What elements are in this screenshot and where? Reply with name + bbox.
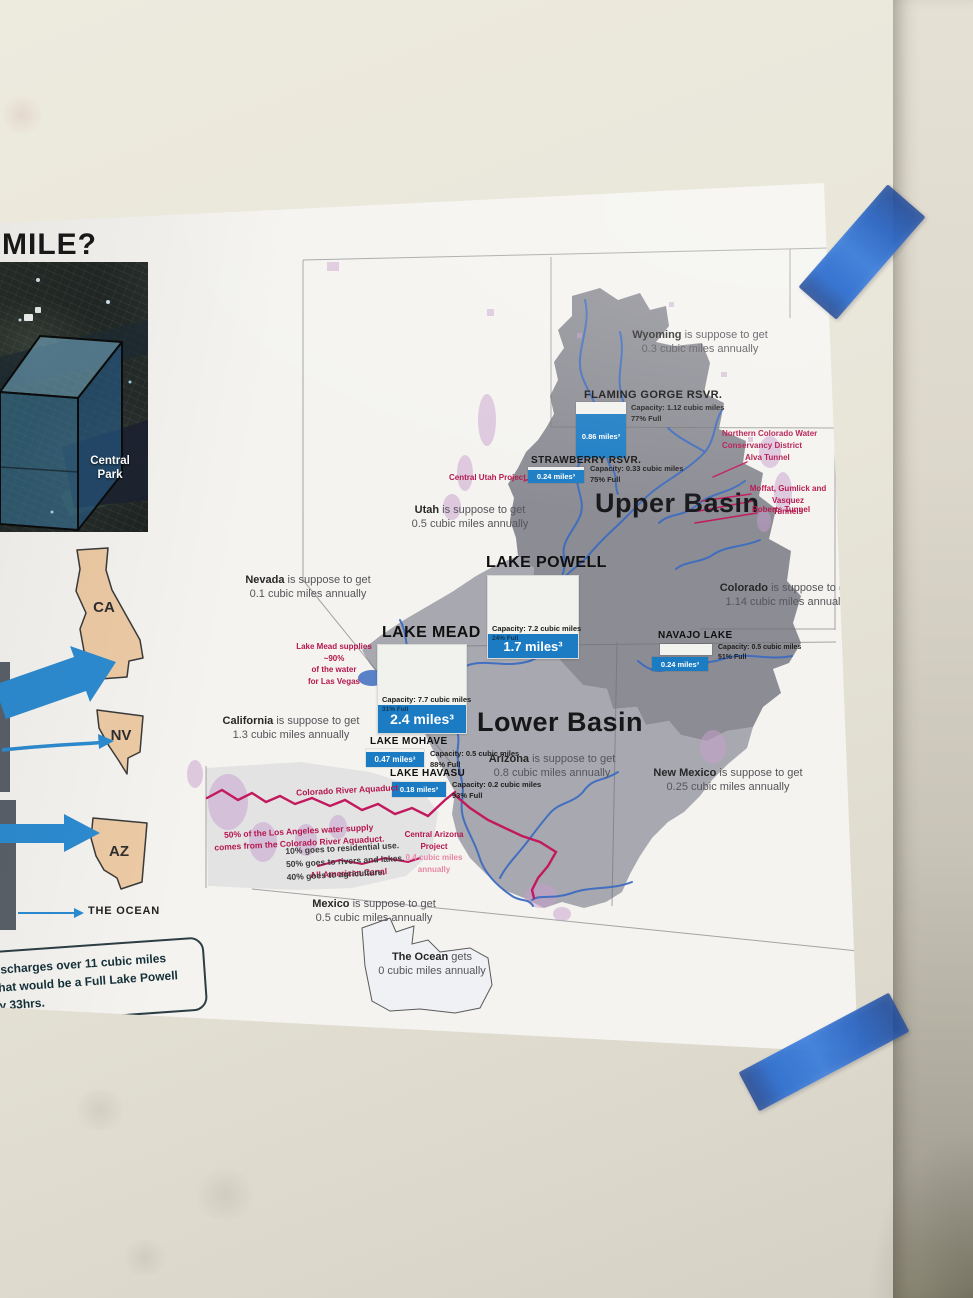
- nevada-abbr: NV: [111, 727, 132, 744]
- reservoir-gauge-lake-powell: Capacity: 7.2 cubic miles 24% Full 1.7 m…: [487, 575, 579, 659]
- allocation-ocean: The Ocean gets0 cubic miles annually: [337, 950, 527, 979]
- poster: MILE? Central Park: [0, 0, 973, 1298]
- arrow-to-nevada: [2, 742, 106, 750]
- california-abbr: CA: [93, 599, 115, 616]
- note-roberts-tunnel: Roberts Tunnel: [752, 504, 810, 516]
- reservoir-name-flaming-gorge: FLAMING GORGE RSVR.: [584, 389, 722, 401]
- reservoir-gauge-flaming-gorge: 0.86 miles³: [576, 402, 626, 458]
- upper-basin-label: Upper Basin: [595, 488, 760, 519]
- la-usage-breakdown: 10% goes to residential use.50% goes to …: [285, 839, 405, 885]
- photo-scene: MILE? Central Park: [0, 0, 973, 1298]
- note-central-utah-project: Central Utah Project: [449, 472, 526, 484]
- wall-spot: [70, 1090, 130, 1130]
- reservoir-gauge-mohave: 0.47 miles³: [366, 749, 424, 767]
- arrow-to-california: [0, 646, 116, 719]
- arrow-to-ocean-head: [74, 908, 84, 918]
- allocation-mexico: Mexico is suppose to get0.5 cubic miles …: [279, 897, 469, 926]
- reservoir-gauge-lake-mead: Capacity: 7.7 cubic miles 31% Full 2.4 m…: [377, 644, 467, 734]
- footnote-box: ischarges over 11 cubic miles hat would …: [0, 936, 208, 1025]
- reservoir-stats-navajo: Capacity: 0.5 cubic miles51% Full: [718, 643, 801, 663]
- note-lake-mead-supply: Lake Mead supplies ~90%of the waterfor L…: [290, 641, 378, 687]
- wall-spot: [120, 1240, 170, 1276]
- wall-smudge: [0, 95, 44, 135]
- reservoir-name-lake-mead: LAKE MEAD: [382, 624, 481, 642]
- wall-spot: [190, 1170, 260, 1220]
- reservoir-stats-flaming-gorge: Capacity: 1.12 cubic miles77% Full: [631, 403, 724, 425]
- allocation-colorado: Colorado is suppose to get1.14 cubic mil…: [692, 581, 882, 610]
- allocation-wyoming: Wyoming is suppose to get0.3 cubic miles…: [605, 328, 795, 357]
- lower-basin-label: Lower Basin: [477, 707, 643, 738]
- note-northern-colorado: Northern Colorado WaterConservancy Distr…: [722, 428, 817, 451]
- reservoir-gauge-navajo: 0.24 miles³: [652, 657, 708, 671]
- arizona-abbr: AZ: [109, 843, 129, 860]
- reservoir-stats-strawberry: Capacity: 0.33 cubic miles75% Full: [590, 464, 683, 486]
- reservoir-name-havasu: LAKE HAVASU: [390, 768, 465, 779]
- allocation-california: California is suppose to get1.3 cubic mi…: [196, 714, 386, 743]
- reservoir-name-lake-powell: LAKE POWELL: [486, 554, 607, 572]
- left-graphic-strip: [0, 800, 16, 930]
- reservoir-stats-havasu: Capacity: 0.2 cubic miles93% Full: [452, 780, 541, 802]
- reservoir-name-navajo: NAVAJO LAKE: [658, 630, 733, 641]
- note-alva-tunnel: Alva Tunnel: [745, 452, 790, 464]
- reservoir-gauge-havasu: 0.18 miles³: [392, 782, 446, 797]
- reservoir-name-mohave: LAKE MOHAVE: [370, 736, 448, 747]
- allocation-utah: Utah is suppose to get0.5 cubic miles an…: [375, 503, 565, 532]
- reservoir-gauge-strawberry: 0.24 miles³: [528, 467, 584, 483]
- reservoir-empty-bar-navajo: [660, 644, 712, 655]
- allocation-nevada: Nevada is suppose to get0.1 cubic miles …: [213, 573, 403, 602]
- the-ocean-label: THE OCEAN: [88, 905, 160, 917]
- allocation-new-mexico: New Mexico is suppose to get0.25 cubic m…: [633, 766, 823, 795]
